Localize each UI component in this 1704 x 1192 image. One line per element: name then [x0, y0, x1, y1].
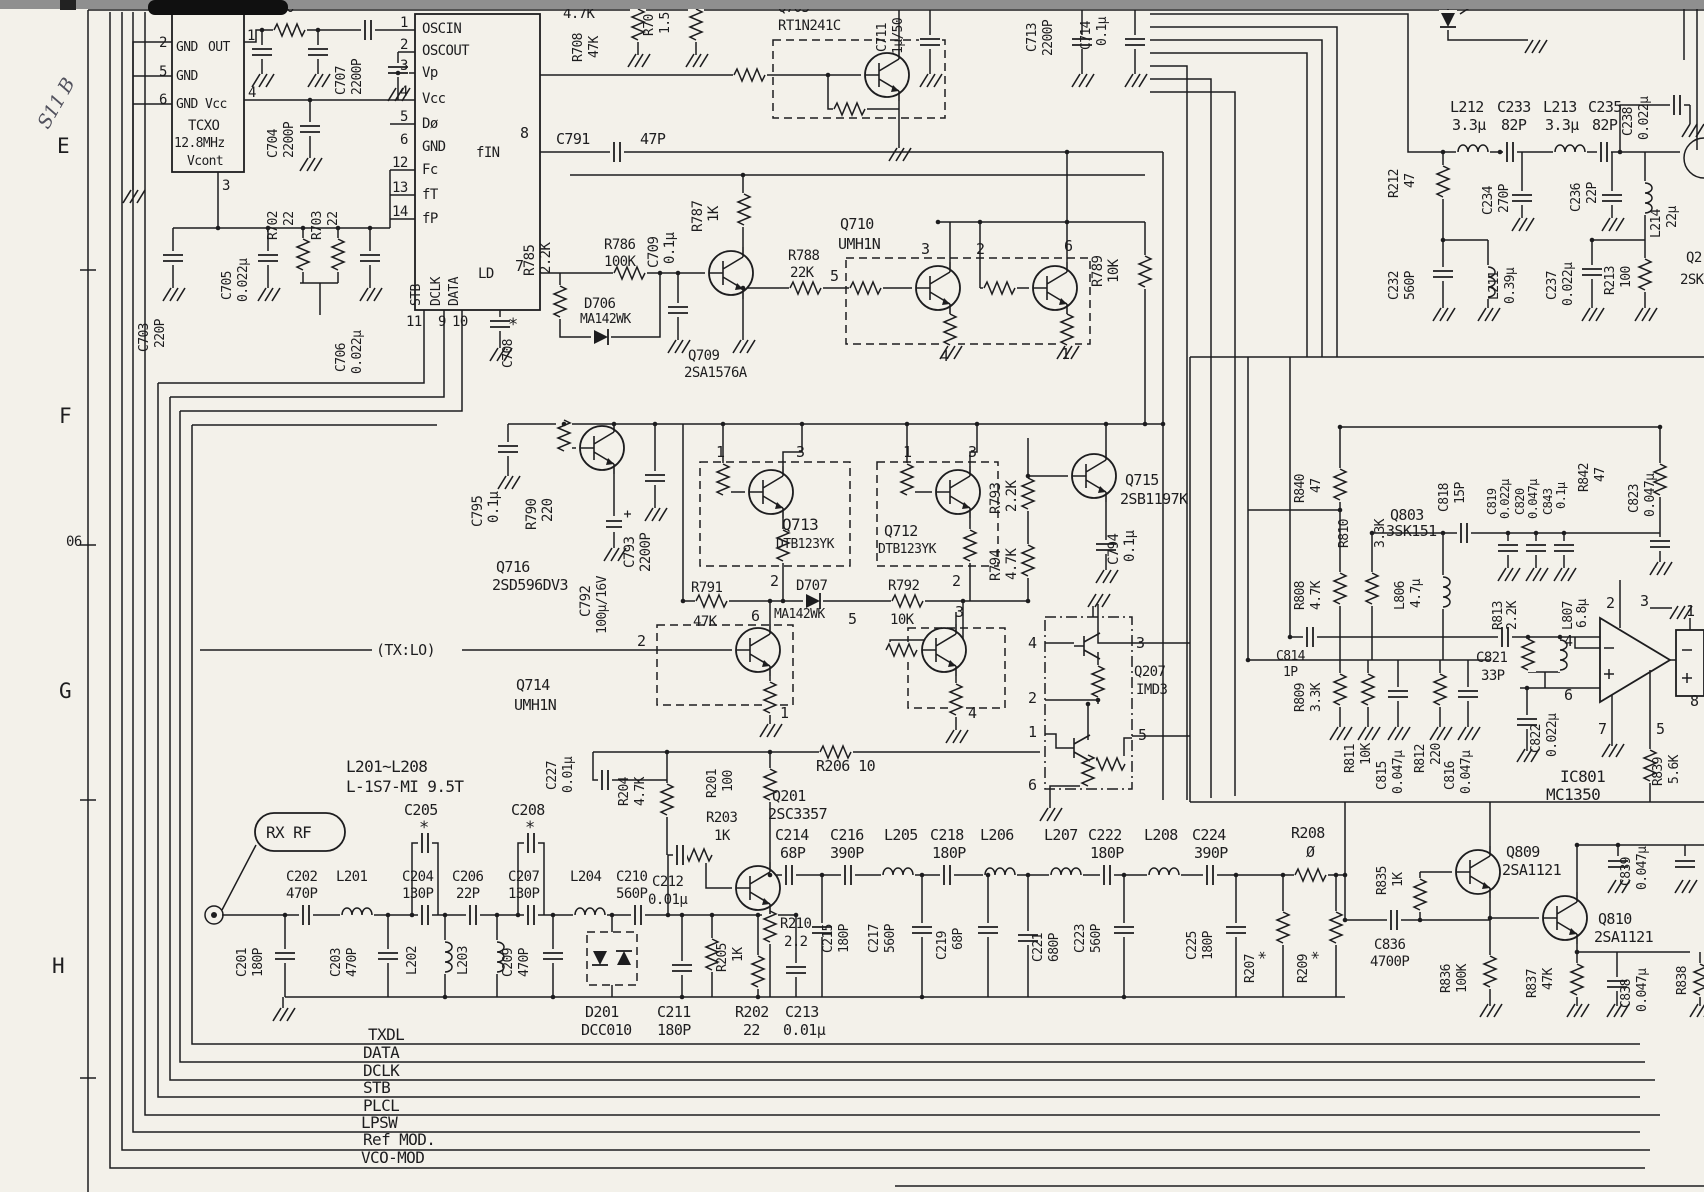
label-67: 47K: [587, 36, 602, 58]
res-symbol: [552, 285, 568, 319]
label-224: 560P: [1089, 923, 1104, 953]
label-135: C794: [1106, 534, 1122, 565]
junction-dot: [1575, 843, 1580, 848]
label-258: 47: [1403, 174, 1418, 188]
cap-symbol: [542, 949, 564, 963]
label-74: C713: [1025, 23, 1040, 52]
res-symbol: [688, 8, 704, 42]
label-237: C213: [785, 1003, 819, 1021]
label-146: 4: [968, 704, 977, 722]
junction-dot: [443, 995, 448, 1000]
label-148: 3: [1136, 634, 1144, 652]
junction-dot: [1122, 873, 1127, 878]
res-symbol: [1090, 665, 1106, 699]
label-169: 68P: [780, 844, 806, 862]
junction-dot: [1441, 531, 1446, 536]
label-48: Fc: [422, 162, 438, 178]
label-254: 82P: [1592, 116, 1618, 134]
label-88: R787: [690, 201, 706, 232]
label-230: *: [1308, 951, 1327, 960]
label-336: 4700P: [1370, 954, 1409, 970]
label-270: 0.022μ: [1561, 262, 1576, 306]
res-symbol: [1435, 165, 1451, 199]
junction-dot: [826, 73, 831, 78]
label-38: OSCOUT: [422, 43, 470, 59]
label-248: 3.3μ: [1452, 116, 1486, 134]
cap-symbol: [1100, 864, 1114, 886]
res-symbol: [885, 642, 919, 658]
label-210: 470P: [517, 947, 532, 977]
label-42: Vcc: [422, 91, 446, 107]
label-110: C792: [578, 586, 594, 617]
junction-dot: [1065, 150, 1070, 155]
label-59: DATA: [447, 276, 462, 306]
label-34: 220P: [153, 318, 168, 348]
cap-symbol: [299, 904, 313, 926]
label-131: R793: [988, 483, 1004, 514]
res-symbol: [983, 280, 1017, 296]
label-165: 1K: [714, 828, 731, 844]
label-91: 2SA1576A: [684, 365, 748, 381]
label-98: 2: [976, 240, 984, 258]
junction-dot: [653, 422, 658, 427]
label-31: C706: [334, 343, 349, 372]
label-159: 0.01μ: [561, 756, 576, 793]
label-155: R206 10: [816, 757, 876, 775]
label-223: C223: [1073, 924, 1088, 953]
label-185: C202: [286, 869, 317, 885]
label-214: 2.2: [784, 934, 808, 950]
cap-symbol: [977, 923, 999, 937]
cap-symbol: [1203, 864, 1217, 886]
label-30: 22: [326, 212, 341, 226]
coil-symbol: [881, 866, 915, 877]
label-233: C211: [657, 1003, 691, 1021]
junction-dot: [681, 599, 686, 604]
label-121: D707: [796, 578, 827, 594]
label-97: 3: [921, 240, 929, 258]
label-115: 3: [796, 443, 804, 461]
cap-symbol: [1432, 267, 1454, 281]
label-345: R838: [1675, 966, 1690, 995]
label-187: L201: [336, 869, 367, 885]
label-220: 68P: [951, 928, 966, 950]
cap-symbol: [1581, 265, 1603, 279]
junction-dot: [1343, 873, 1348, 878]
label-104: C795: [470, 496, 486, 527]
res-symbol: [1059, 313, 1075, 347]
grid-row-h: H: [52, 954, 64, 978]
label-304: 33P: [1481, 668, 1505, 684]
res-symbol: [1275, 911, 1291, 945]
res-symbol: [948, 683, 964, 717]
label-262: 22P: [1585, 182, 1600, 204]
label-309: 6: [1564, 686, 1573, 704]
label-184: RX RF: [266, 823, 311, 842]
res-symbol: [1520, 638, 1536, 672]
label-77: 0.1μ: [1095, 16, 1110, 46]
label-12: 6: [159, 92, 167, 108]
label-43: 5: [400, 109, 408, 125]
label-289: C820: [1513, 488, 1527, 515]
label-126: 2: [952, 572, 960, 590]
junction-dot: [1618, 150, 1623, 155]
label-78: C791: [556, 130, 590, 148]
label-103: 10K: [1106, 258, 1122, 283]
label-101: 1: [1061, 345, 1070, 363]
cap-symbol: [598, 769, 612, 791]
label-119: R791: [691, 580, 722, 596]
label-167: 2SC3357: [768, 805, 827, 823]
scan-blob: [148, 0, 288, 15]
label-303: C821: [1476, 650, 1507, 666]
junction-dot: [1506, 531, 1511, 536]
bus-vcomod: VCO-MOD: [361, 1148, 424, 1167]
junction-dot: [610, 913, 615, 918]
label-202: 0.01μ: [648, 892, 688, 908]
cap-symbol: [1457, 522, 1471, 544]
label-295: C823: [1627, 484, 1642, 513]
junction-dot: [1441, 150, 1446, 155]
label-260: 270P: [1497, 183, 1512, 213]
res-symbol: [833, 101, 867, 117]
cap-symbol: [377, 949, 399, 963]
label-317: C815: [1375, 761, 1390, 790]
label-275: R840: [1293, 474, 1308, 503]
label-170: C216: [830, 826, 864, 844]
label-28: 22: [282, 212, 297, 226]
label-297: C814: [1276, 649, 1306, 664]
label-342: 47K: [1541, 968, 1556, 990]
label-41: 4: [400, 84, 408, 100]
label-94: 5: [830, 267, 838, 285]
junction-dot: [1026, 873, 1031, 878]
label-199: C210: [616, 869, 647, 885]
label-213: R210: [780, 916, 811, 932]
label-92: R788: [788, 248, 819, 264]
label-175: L206: [980, 826, 1014, 844]
junction-dot: [986, 873, 991, 878]
label-192: C206: [452, 869, 483, 885]
label-125: 3: [968, 443, 976, 461]
junction-dot: [756, 995, 761, 1000]
label-343: C838: [1619, 979, 1634, 1008]
label-301: L807: [1561, 601, 1576, 630]
junction-dot: [1338, 508, 1343, 513]
label-324: 0.022μ: [1545, 713, 1560, 757]
junction-dot: [820, 873, 825, 878]
label-127: Q712: [884, 522, 918, 540]
label-314: 3.3K: [1309, 682, 1324, 712]
junction-dot: [612, 422, 617, 427]
label-128: DTB123YK: [878, 542, 937, 557]
label-18: Vcont: [187, 154, 223, 169]
label-269: C237: [1545, 271, 1560, 300]
label-255: C238: [1621, 107, 1636, 136]
coil-symbol: [1441, 575, 1452, 609]
label-311: 5: [1656, 720, 1664, 738]
label-228: *: [1255, 951, 1274, 960]
label-191: 130P: [402, 886, 433, 902]
label-153: Q207: [1134, 664, 1165, 680]
label-249: C233: [1497, 98, 1531, 116]
label-116: 2: [770, 572, 778, 590]
junction-dot: [721, 422, 726, 427]
label-232: DCC010: [581, 1021, 632, 1039]
label-84: D706: [584, 296, 615, 312]
cap-symbol: [162, 251, 184, 265]
label-284: 4.7K: [1309, 580, 1324, 610]
junction-dot: [666, 913, 671, 918]
label-339: Q810: [1598, 910, 1632, 928]
label-290: 0.047μ: [1526, 479, 1540, 519]
cap-symbol: [1497, 541, 1519, 555]
label-17: 12.8MHz: [174, 136, 225, 151]
bus-refmod: Ref MOD.: [363, 1130, 435, 1149]
label-99: 6: [1064, 237, 1073, 255]
coil-symbol: [1553, 143, 1587, 154]
cap-symbol: [1303, 626, 1317, 648]
junction-dot: [1096, 698, 1101, 703]
label-39: 3: [400, 58, 408, 74]
label-95: Q710: [840, 215, 874, 233]
label-7: GND: [176, 40, 198, 55]
label-85: MA142WK: [580, 312, 631, 327]
cap-symbol: [785, 963, 807, 977]
label-209: C209: [501, 948, 516, 977]
junction-dot: [1418, 918, 1423, 923]
junction-dot: [975, 422, 980, 427]
res-symbol: [750, 955, 766, 989]
label-319: R812: [1413, 744, 1428, 773]
label-163: 100: [721, 770, 736, 792]
label-46: GND: [422, 139, 446, 155]
label-49: 13: [392, 180, 408, 196]
label-9: 1: [247, 28, 255, 44]
label-157: L-1S7-MI 9.5T: [346, 777, 464, 796]
label-201: C212: [652, 874, 683, 890]
label-183: Ø: [1306, 843, 1315, 861]
label-287: C819: [1485, 488, 1499, 515]
junction-dot: [920, 995, 925, 1000]
label-331: Q809: [1506, 843, 1540, 861]
res-symbol: [762, 910, 778, 944]
label-21: C707: [334, 66, 349, 95]
label-52: fP: [422, 211, 438, 227]
label-141: UMH1N: [514, 696, 557, 714]
label-132: 2.2K: [1004, 480, 1020, 512]
junction-dot: [741, 173, 746, 178]
label-171: 390P: [830, 844, 864, 862]
label-338: 100K: [1455, 963, 1470, 993]
label-285: L806: [1393, 581, 1408, 610]
label-271: R213: [1603, 266, 1618, 295]
label-166: Q201: [772, 787, 806, 805]
label-27: R702: [266, 211, 281, 240]
junction-dot: [562, 422, 567, 427]
cap-symbol: [274, 949, 296, 963]
label-120: 47K: [693, 614, 718, 630]
coil-symbol: [1049, 866, 1083, 877]
label-149: 2: [1028, 689, 1036, 707]
cap-symbol: [307, 45, 329, 59]
label-162: R201: [705, 769, 720, 798]
label-200: 560P: [616, 886, 647, 902]
label-137: Q715: [1125, 471, 1159, 489]
label-293: R842: [1577, 463, 1592, 492]
junction-dot: [216, 226, 221, 231]
label-194: C208: [511, 801, 545, 819]
junction-dot: [800, 422, 805, 427]
grid-row-g: G: [59, 679, 71, 703]
label-25: C705: [220, 271, 235, 300]
label-313: R809: [1293, 683, 1308, 712]
label-66: R708: [571, 33, 586, 62]
label-280: 3SK151: [1386, 522, 1437, 540]
label-55: LD: [478, 266, 494, 282]
label-73: 1μ/50: [891, 18, 906, 54]
label-215: C215: [821, 924, 836, 953]
junction-dot: [443, 913, 448, 918]
res-symbol: [1482, 955, 1498, 989]
label-344: 0.047μ: [1635, 968, 1650, 1012]
junction-dot: [368, 226, 373, 231]
res-symbol: [1360, 673, 1376, 707]
junction-dot: [1281, 873, 1286, 878]
label-57: STB: [409, 284, 424, 306]
junction-dot: [1526, 635, 1531, 640]
coil-symbol: [443, 940, 454, 974]
cap-symbol: [631, 904, 645, 926]
junction-dot: [680, 995, 685, 1000]
res-symbol: [1332, 468, 1348, 502]
label-168: C214: [775, 826, 809, 844]
label-188: C205: [404, 801, 438, 819]
junction-dot: [710, 913, 715, 918]
coil-symbol: [340, 906, 374, 917]
junction-dot: [308, 98, 313, 103]
junction-dot: [1498, 150, 1503, 155]
label-19: 3: [222, 178, 230, 194]
label-36: OSCIN: [422, 21, 461, 37]
junction-dot: [1334, 873, 1339, 878]
label-310: 7: [1598, 720, 1606, 738]
label-216: 180P: [837, 923, 852, 953]
diode-top-right: [1439, 10, 1457, 30]
label-90: Q709: [688, 348, 719, 364]
label-264: 22μ: [1665, 206, 1680, 228]
label-145: 3: [955, 603, 963, 621]
label-291: C843: [1541, 488, 1555, 515]
label-333: R835: [1375, 866, 1390, 895]
label-8: OUT: [208, 40, 230, 55]
label-180: C224: [1192, 826, 1226, 844]
res-symbol: [1332, 673, 1348, 707]
label-316: 10K: [1359, 743, 1374, 765]
res-symbol: [1294, 867, 1328, 883]
cap-symbol: [1124, 35, 1146, 49]
label-72: C711: [875, 23, 890, 52]
label-212: 1K: [731, 947, 746, 962]
label-182: R208: [1291, 824, 1325, 842]
junction-dot: [260, 28, 265, 33]
label-117: Q713: [782, 515, 818, 534]
label-29: R703: [310, 211, 325, 240]
label-203: C201: [235, 948, 250, 977]
junction-dot: [781, 599, 786, 604]
junction-dot: [1338, 425, 1343, 430]
res-symbol: [1432, 673, 1448, 707]
res-symbol: [1093, 756, 1127, 772]
junction-dot: [386, 913, 391, 918]
label-172: L205: [884, 826, 918, 844]
junction-dot: [978, 220, 983, 225]
junction-dot: [936, 220, 941, 225]
label-33: C703: [137, 323, 152, 352]
res-symbol: [1332, 572, 1348, 606]
label-118: DTB123YK: [776, 537, 835, 552]
label-282: 15P: [1453, 482, 1468, 504]
junction-dot: [1122, 995, 1127, 1000]
label-177: C222: [1088, 826, 1122, 844]
label-305: 2: [1606, 594, 1614, 612]
label-60: 11: [406, 314, 422, 330]
res-symbol: [1692, 963, 1704, 997]
cap-symbol: [466, 904, 480, 926]
coil-symbol: [1456, 143, 1490, 154]
res-symbol: [1364, 572, 1380, 606]
label-273: Q2: [1686, 250, 1702, 266]
junction-dot: [920, 873, 925, 878]
cap-symbol: [1674, 857, 1696, 871]
res-symbol: [736, 193, 752, 227]
label-173: C218: [930, 826, 964, 844]
res-symbol: [849, 280, 883, 296]
cap-symbol: [524, 904, 538, 926]
label-143: 6: [751, 607, 760, 625]
label-102: R789: [1090, 256, 1106, 287]
junction-dot: [1143, 422, 1148, 427]
cap-symbol: [1113, 923, 1135, 937]
label-76: C714: [1079, 20, 1094, 50]
label-296: 0.047μ: [1643, 473, 1658, 517]
cap-symbol: [1649, 537, 1671, 551]
junction-dot: [741, 286, 746, 291]
schematic-canvas: EFGH06S11 B2GNDOUT15GND6GNDVcc4TCXO12.8M…: [0, 0, 1704, 1192]
label-53: fIN: [476, 145, 500, 161]
label-10: 5: [159, 64, 167, 80]
label-156: L201~L208: [346, 757, 427, 776]
junction-dot: [768, 599, 773, 604]
diode-d706: [591, 328, 611, 346]
label-68: R70: [642, 14, 657, 36]
label-134: 4.7K: [1004, 548, 1020, 580]
cap-symbol: [1387, 687, 1409, 701]
res-symbol: [659, 783, 675, 817]
label-250: 82P: [1501, 116, 1527, 134]
cap-symbol: [610, 141, 624, 163]
label-154: IMD3: [1136, 682, 1167, 698]
label-292: 0.1μ: [1554, 482, 1568, 509]
junction-dot: [1558, 635, 1563, 640]
label-190: C204: [402, 869, 433, 885]
label-335: C836: [1374, 937, 1405, 953]
label-263: L214: [1649, 208, 1664, 238]
label-144: 1: [780, 704, 789, 722]
label-106: R790: [524, 499, 540, 530]
label-234: 180P: [657, 1021, 691, 1039]
label-24: 2200P: [282, 121, 297, 158]
